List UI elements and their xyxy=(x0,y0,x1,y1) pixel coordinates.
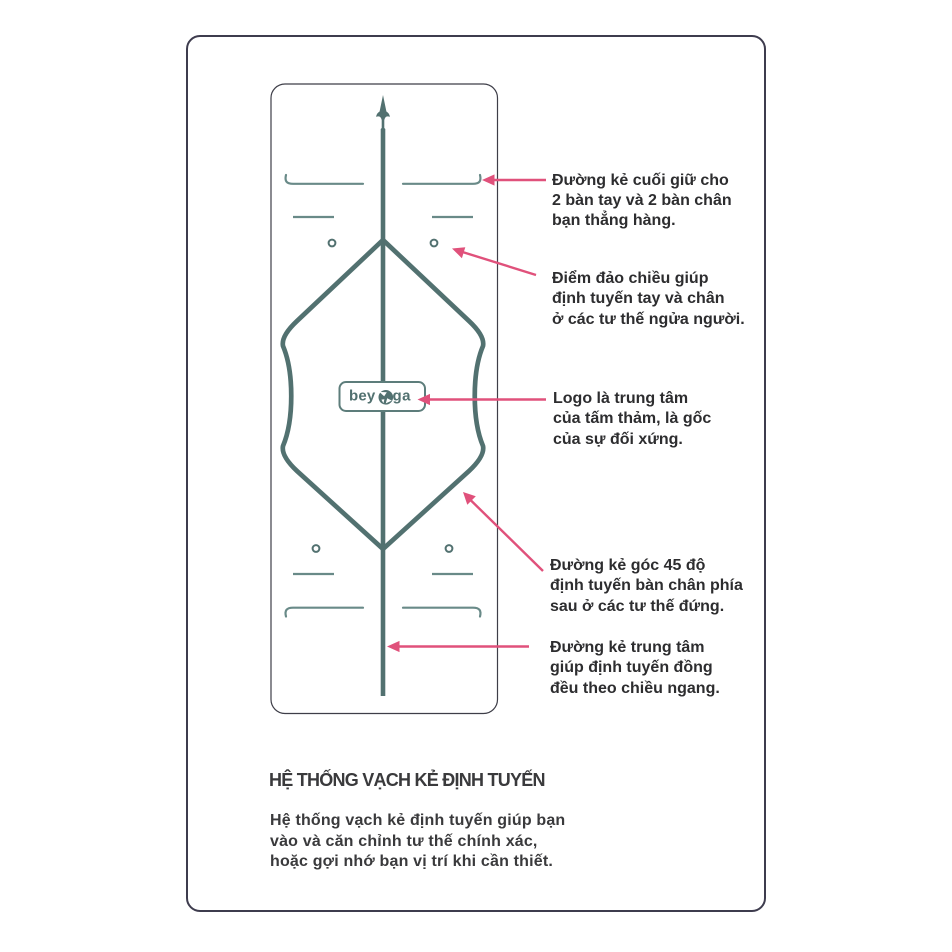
svg-text:ga: ga xyxy=(393,388,412,405)
svg-text:bey: bey xyxy=(349,388,376,405)
